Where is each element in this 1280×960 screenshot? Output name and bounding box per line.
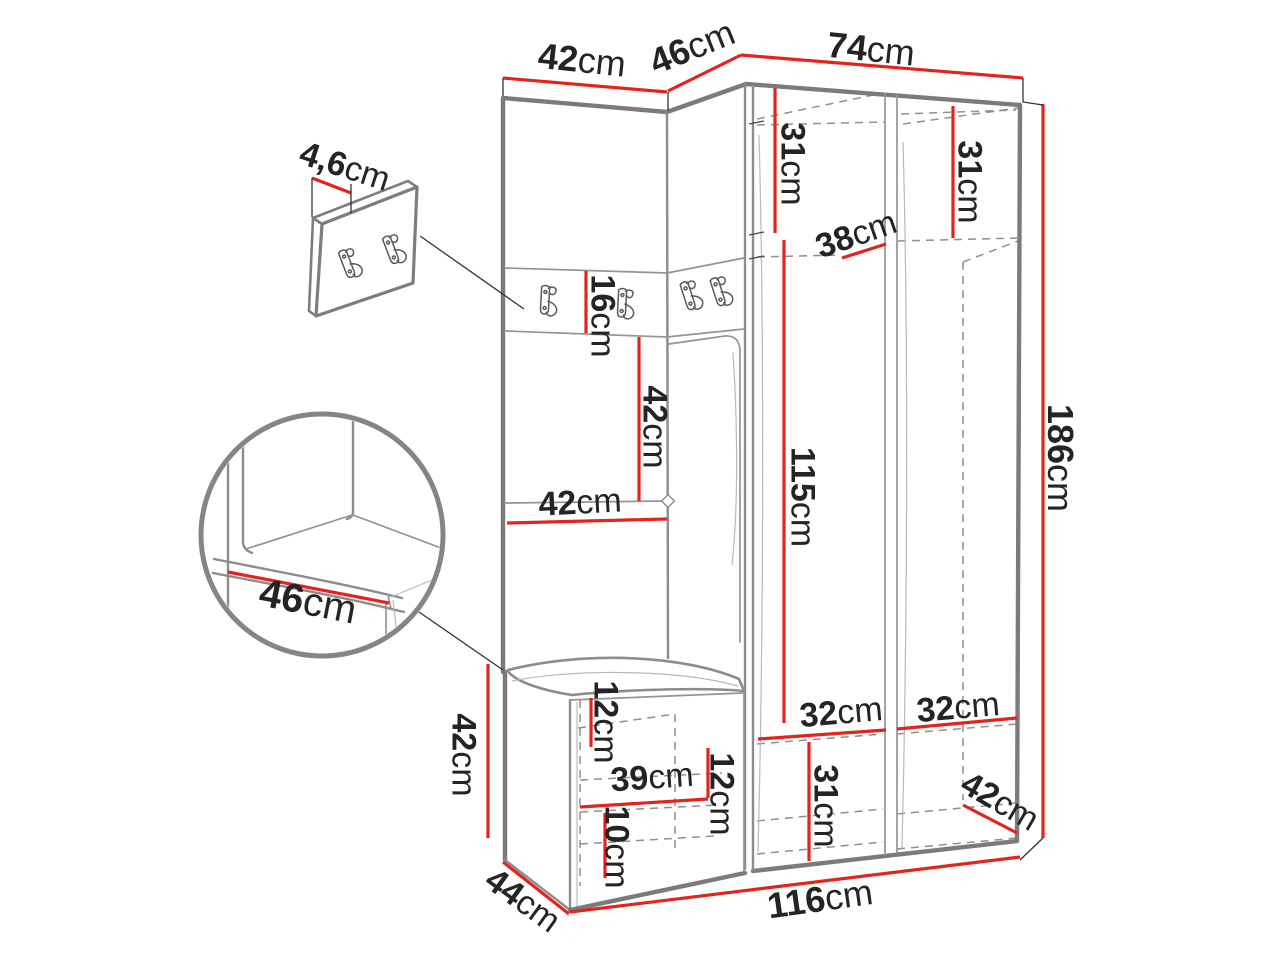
dim-label-hook-strip-height: 16cm (583, 274, 621, 357)
dim-label-lower-shelf-width-l: 32cm (798, 690, 884, 735)
dim-label-upper-shelf-left: 31cm (773, 122, 811, 205)
dim-label-lower-shelf-height: 31cm (806, 764, 844, 847)
dim-label-total-height: 186cm (1040, 404, 1081, 512)
dim-label-mirror-height: 42cm (635, 385, 673, 468)
dim-label-bench-upper-gap: 12cm (586, 680, 624, 763)
dim-label-bench-lower-gap: 10cm (597, 805, 635, 888)
dim-label-hanging-space-height: 115cm (783, 447, 821, 547)
dim-label-left-column-width: 42cm (538, 481, 623, 523)
dim-label-bench-mid-gap: 12cm (702, 752, 740, 835)
dim-label-bench-height: 42cm (444, 713, 482, 796)
dim-label-lower-shelf-width-r: 32cm (915, 685, 1001, 730)
technical-drawing: 42cm46cm74cm4,6cm46cm16cm42cm42cm31cm31c… (0, 0, 1280, 960)
dim-label-bench-shelf-width: 39cm (609, 756, 695, 800)
dim-label-upper-shelf-right: 31cm (950, 140, 988, 223)
diagram-canvas: 42cm46cm74cm4,6cm46cm16cm42cm42cm31cm31c… (0, 0, 1280, 960)
